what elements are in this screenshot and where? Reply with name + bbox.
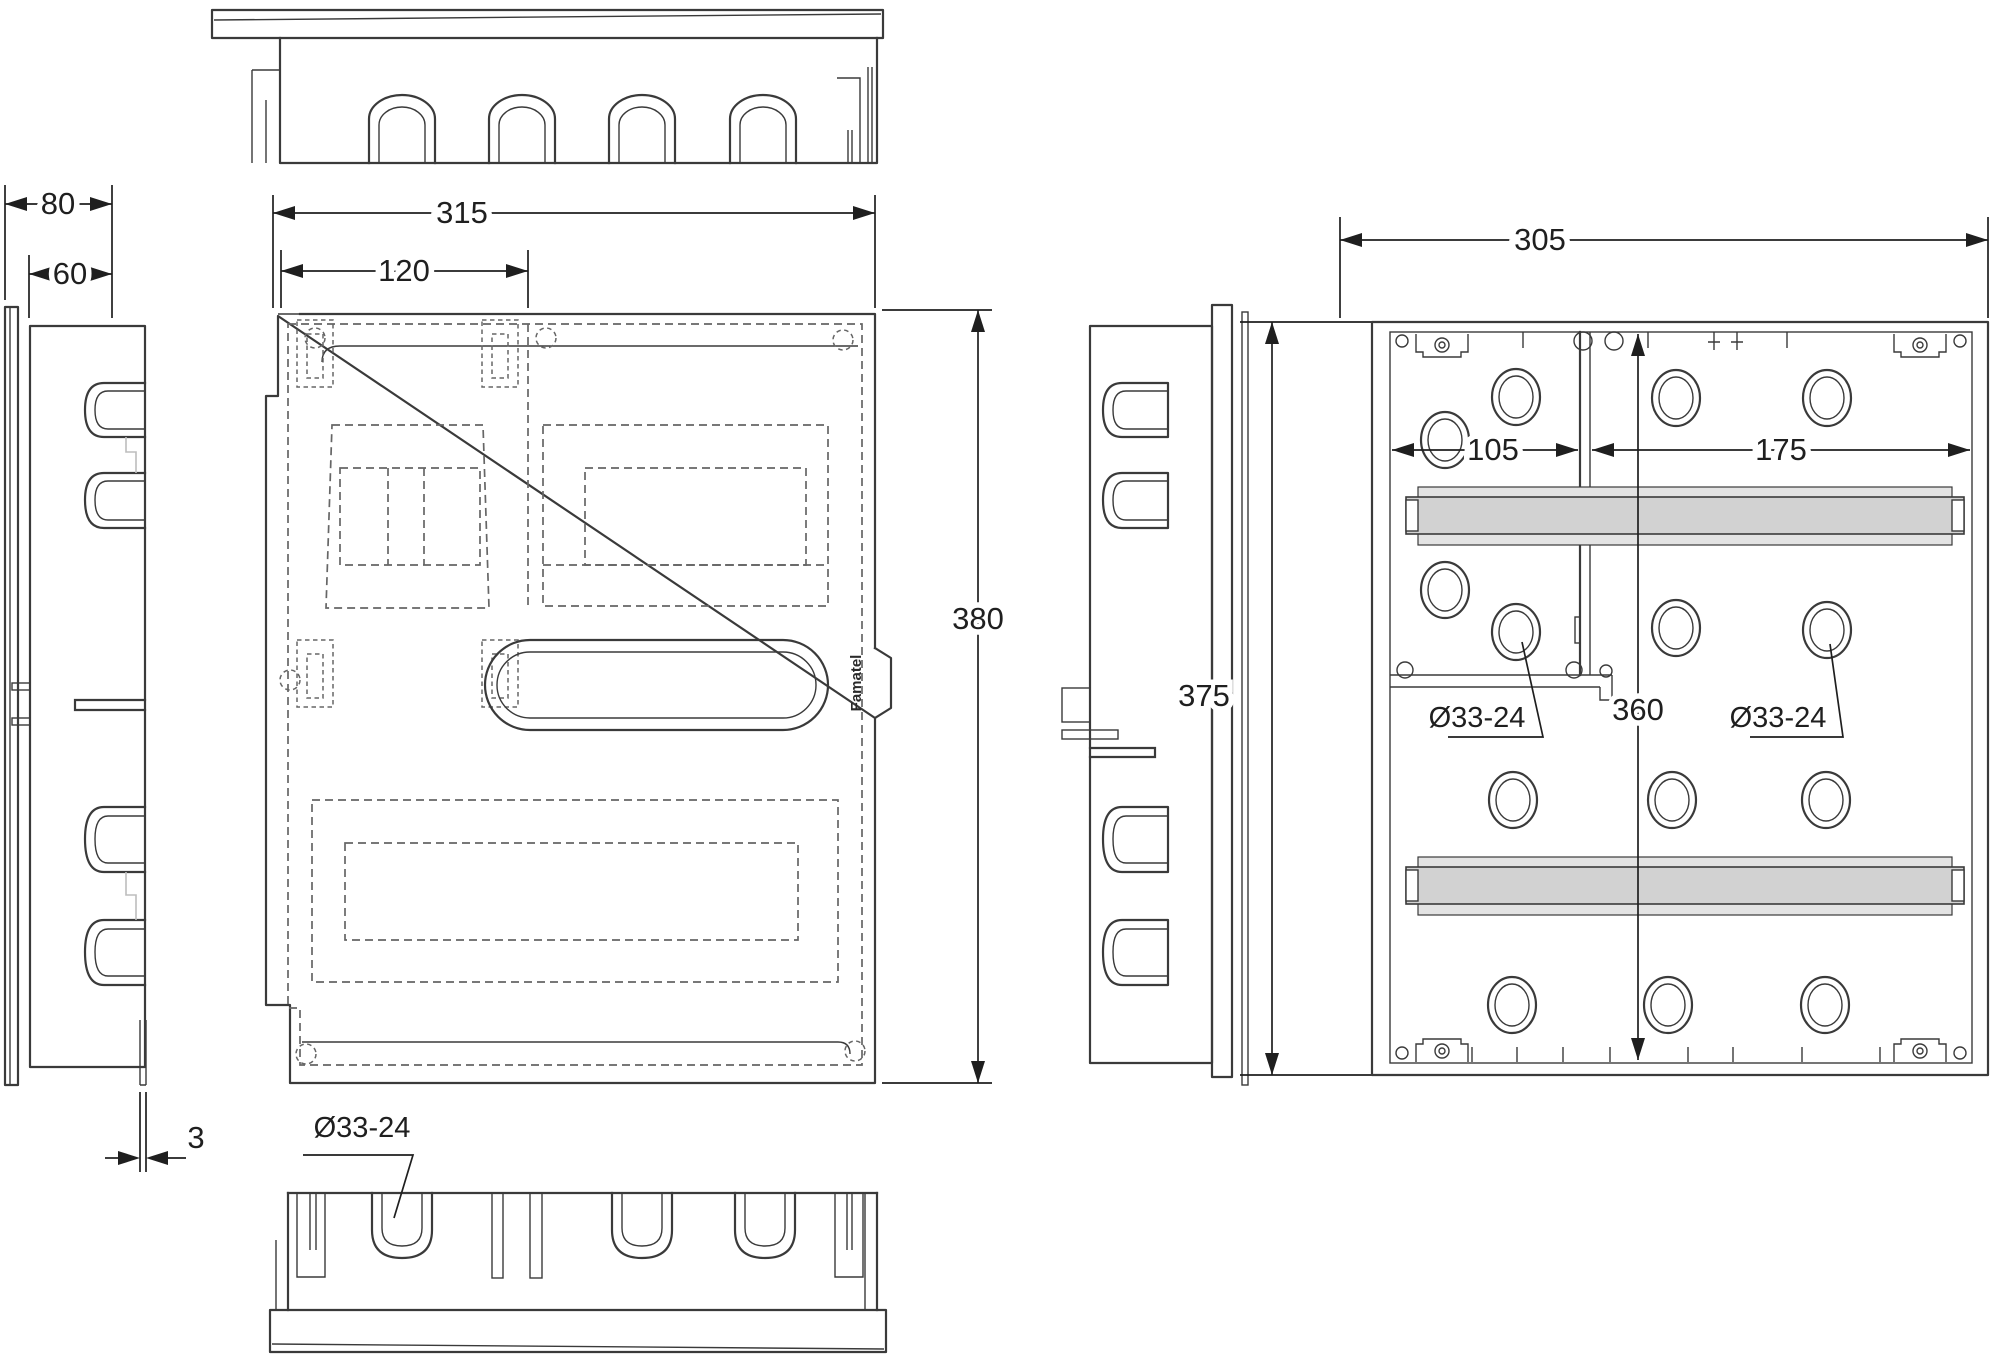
dim-label-375: 375 [1178,678,1230,713]
bottom-slot [530,1193,542,1278]
dim-label-380: 380 [952,601,1004,636]
side-back-panel [5,307,18,1085]
dim-back-right-zone: 175 [1592,432,1970,467]
dim-label-80: 80 [41,186,75,221]
front-rail-clips [297,320,518,707]
front-view: Famatel [266,314,891,1083]
knockout-dome-inner [1113,929,1168,976]
knockout-dome-inner [95,929,145,976]
side2-shelf [1090,748,1155,757]
din-rail-top [1406,487,1964,545]
back-edge-ticks [1472,332,1880,1062]
bottom-body-sides-inner [276,1193,865,1310]
bottom-view: Ø33-24 [270,1112,886,1352]
corner-hole [1396,335,1408,347]
side-knockouts [85,383,145,985]
corner-hole [1396,1047,1408,1059]
front-right-compartment [543,425,828,606]
knockout-link [126,437,136,920]
dim-label-3: 3 [187,1120,204,1155]
label-ko-back-right: Ø33-24 [1730,702,1827,734]
dim-side-depth-total: 80 [5,185,112,318]
front-outline [266,314,875,1083]
front-lid-bottom-line [302,1042,850,1054]
front-latch-bump [875,648,891,718]
famatel-logo: Famatel [848,655,865,712]
side2-door-edge [1242,312,1248,1085]
front-handle-recess [485,640,828,730]
knockout-arch-inner [499,107,545,163]
bottom-knockout-label: Ø33-24 [303,1112,413,1218]
knockout-dome-inner [95,481,145,520]
knockout-dome-inner [95,816,145,863]
dim-label-305: 305 [1514,222,1566,257]
dim-lid-thickness: 3 [105,1092,205,1172]
knockout-dome-inner [1113,391,1168,429]
knockout-dome [85,807,145,872]
dim-back-inner-height: 360 [1612,334,1664,1060]
knockout-arch-inner [745,1193,785,1246]
dim-top-width: 315 [273,195,875,308]
bottom-lid-edge [272,1344,884,1349]
left-side-view [5,307,146,1085]
side2-mount-tab [1062,688,1090,722]
dim-label-360: 360 [1612,692,1664,727]
back-view: 105 175 360 Ø33-24 Ø33-24 [1372,322,1988,1075]
knockout-dome-inner [1113,481,1168,520]
dim-back-height: 375 [1178,322,1372,1075]
knockout-arch-inner [382,1193,422,1246]
dim-front-height: 380 [882,310,1004,1083]
dim-label-60: 60 [53,256,87,291]
technical-drawing-canvas: 315 120 80 60 [0,0,2000,1357]
bottom-left-post [297,1193,325,1277]
corner-hole [1954,335,1966,347]
knockout-dome-inner [1113,816,1168,863]
knockout-arch [372,1193,432,1258]
din-rail-bottom [1406,857,1964,915]
top-view-right-post [837,67,872,163]
knockout-arch-inner [619,107,665,163]
side2-knockouts [1103,383,1168,985]
top-view-left-post [252,70,280,163]
corner-hole [1954,1047,1966,1059]
front-door-dashed [288,324,862,1065]
label-ko-back-left: Ø33-24 [1429,702,1526,734]
knockout-dome-inner [95,391,145,429]
bottom-right-post [835,1193,863,1277]
dim-side-depth-body: 60 [29,255,112,318]
dim-back-left-zone: 105 [1392,432,1578,467]
knockout-arch-inner [379,107,425,163]
side-shelf [75,700,145,710]
top-view-lid-edge [214,14,881,20]
bottom-slot [492,1193,503,1278]
top-view-knockouts [369,95,796,163]
bottom-knockouts [372,1193,795,1258]
side-tab [12,683,30,690]
side-tab [12,718,30,725]
knockout-arch-inner [622,1193,662,1246]
front-lid-top-line [322,346,858,362]
knockout-arch [735,1193,795,1258]
dim-meter-zone: 120 [281,250,528,308]
top-view [212,10,883,163]
knockout-arch-inner [740,107,786,163]
back-outline [1372,322,1988,1075]
drawing-svg: 315 120 80 60 [0,0,2000,1357]
front-screw-circles [280,328,865,1064]
dim-label-175: 175 [1755,432,1807,467]
label-ko-bottom: Ø33-24 [314,1112,411,1144]
dim-label-105: 105 [1467,432,1519,467]
dim-label-120: 120 [378,253,430,288]
back-knockout-label-left: Ø33-24 [1429,642,1543,737]
dim-back-width: 305 [1340,217,1988,318]
hinge-ring [1605,332,1623,350]
knockout-dome [85,920,145,985]
knockout-arch [612,1193,672,1258]
front-lower-compartment [312,800,838,982]
dim-label-315: 315 [436,195,488,230]
bottom-lid-flange [270,1310,886,1352]
front-meter-compartment [326,425,489,608]
